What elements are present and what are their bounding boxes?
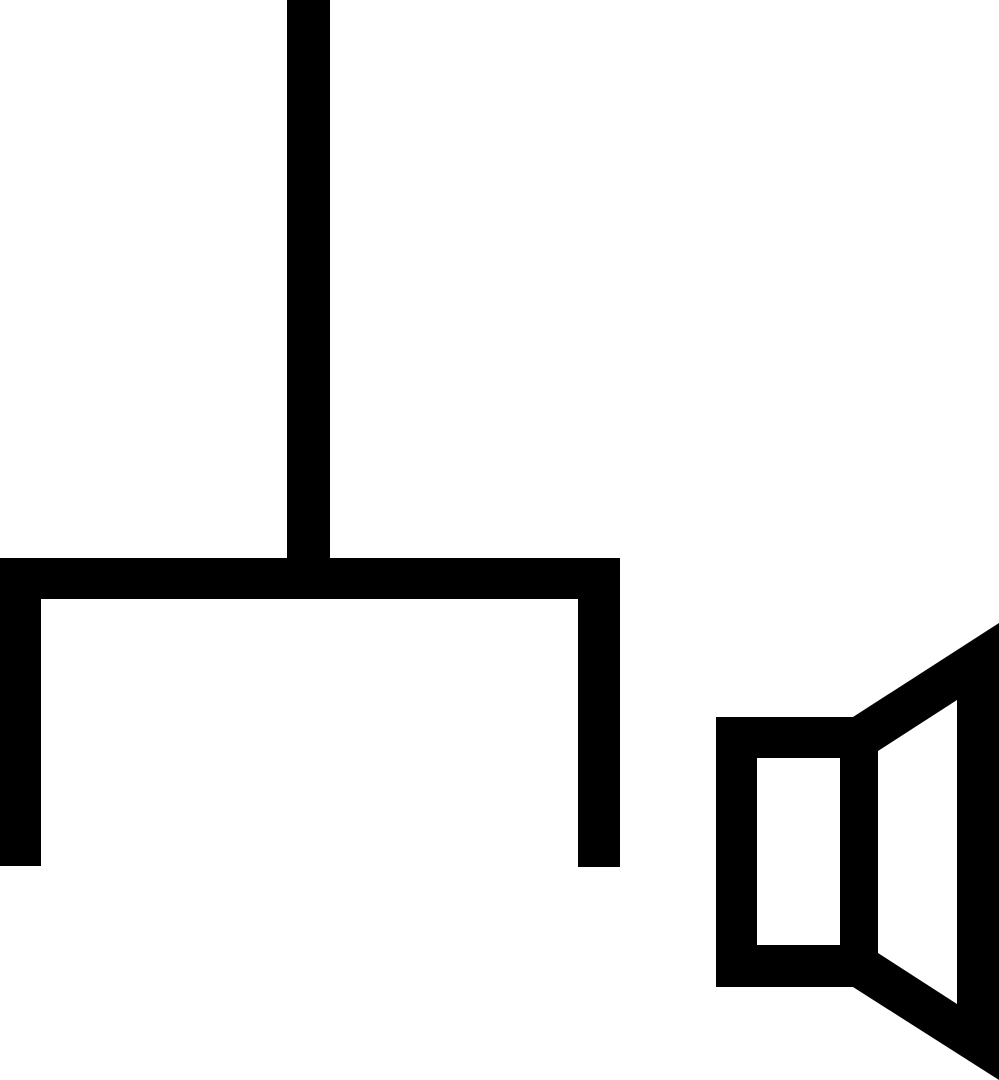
bracket-right-leg [578, 558, 620, 867]
icon-canvas [0, 0, 999, 1080]
bracket-stem [287, 0, 330, 599]
bracket-left-leg [0, 558, 41, 866]
speaker-box-hole [757, 758, 840, 945]
bracket-top-bar [0, 558, 620, 599]
speaker-horn-hole [878, 700, 957, 1004]
